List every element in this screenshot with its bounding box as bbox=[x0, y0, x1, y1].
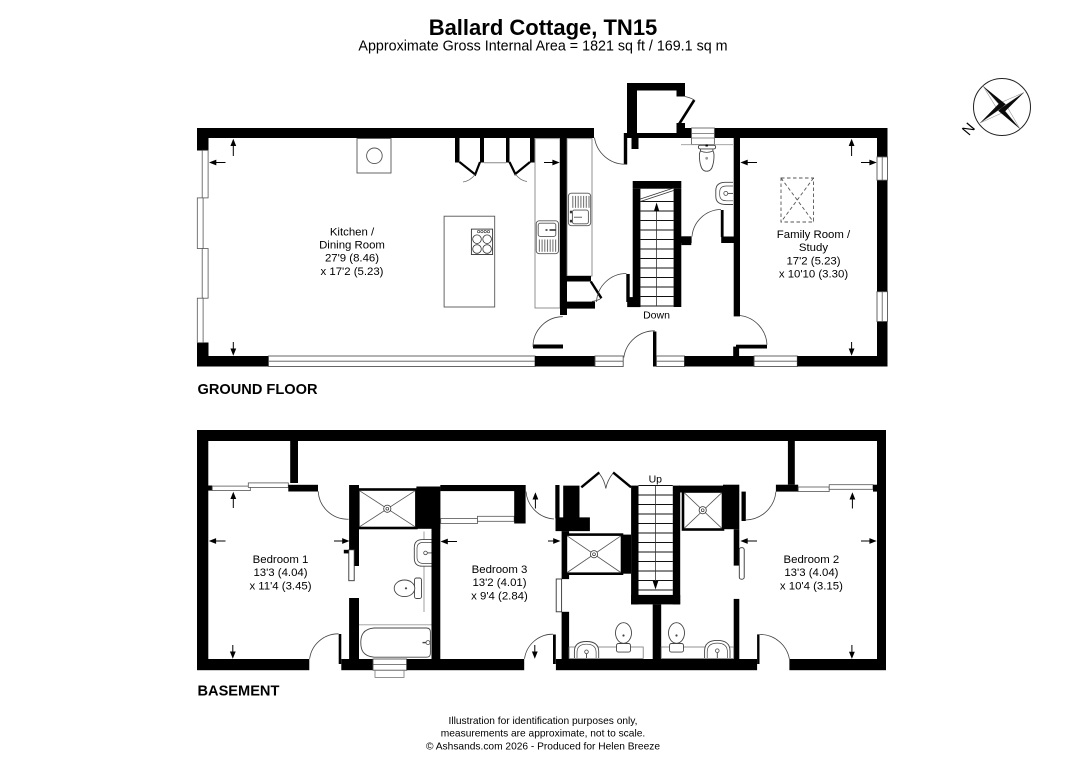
svg-text:x 17'2 (5.23): x 17'2 (5.23) bbox=[321, 266, 384, 278]
svg-text:x 9'4 (2.84): x 9'4 (2.84) bbox=[471, 590, 528, 602]
svg-text:Bedroom 3: Bedroom 3 bbox=[472, 564, 528, 576]
svg-text:x 10'10 (3.30): x 10'10 (3.30) bbox=[779, 269, 849, 281]
svg-text:Approximate Gross Internal Are: Approximate Gross Internal Area = 1821 s… bbox=[358, 39, 727, 55]
svg-text:17'2 (5.23): 17'2 (5.23) bbox=[786, 255, 840, 267]
svg-text:x 10'4 (3.15): x 10'4 (3.15) bbox=[780, 580, 843, 592]
svg-text:Kitchen /: Kitchen / bbox=[330, 226, 375, 238]
svg-text:Ballard Cottage, TN15: Ballard Cottage, TN15 bbox=[429, 15, 658, 40]
svg-text:GROUND FLOOR: GROUND FLOOR bbox=[198, 382, 318, 398]
svg-text:measurements are approximate,: measurements are approximate, not to sca… bbox=[441, 729, 645, 740]
svg-text:Family Room /: Family Room / bbox=[777, 229, 851, 241]
svg-text:x 11'4 (3.45): x 11'4 (3.45) bbox=[249, 580, 311, 592]
svg-text:Up: Up bbox=[649, 474, 663, 486]
svg-text:13'3 (4.04): 13'3 (4.04) bbox=[784, 567, 838, 579]
svg-text:Illustration for identificatio: Illustration for identification purposes… bbox=[449, 716, 638, 727]
svg-text:Bedroom 2: Bedroom 2 bbox=[784, 554, 840, 566]
svg-text:Study: Study bbox=[799, 242, 828, 254]
svg-text:Bedroom 1: Bedroom 1 bbox=[253, 554, 309, 566]
svg-text:BASEMENT: BASEMENT bbox=[198, 683, 280, 699]
svg-text:Dining Room: Dining Room bbox=[319, 240, 385, 252]
svg-text:© Ashsands.com 2026 - Produced: © Ashsands.com 2026 - Produced for Helen… bbox=[426, 741, 660, 752]
svg-text:27'9 (8.46): 27'9 (8.46) bbox=[325, 253, 379, 265]
svg-text:13'3 (4.04): 13'3 (4.04) bbox=[253, 567, 307, 579]
svg-text:Down: Down bbox=[643, 310, 670, 322]
svg-text:13'2 (4.01): 13'2 (4.01) bbox=[472, 577, 526, 589]
